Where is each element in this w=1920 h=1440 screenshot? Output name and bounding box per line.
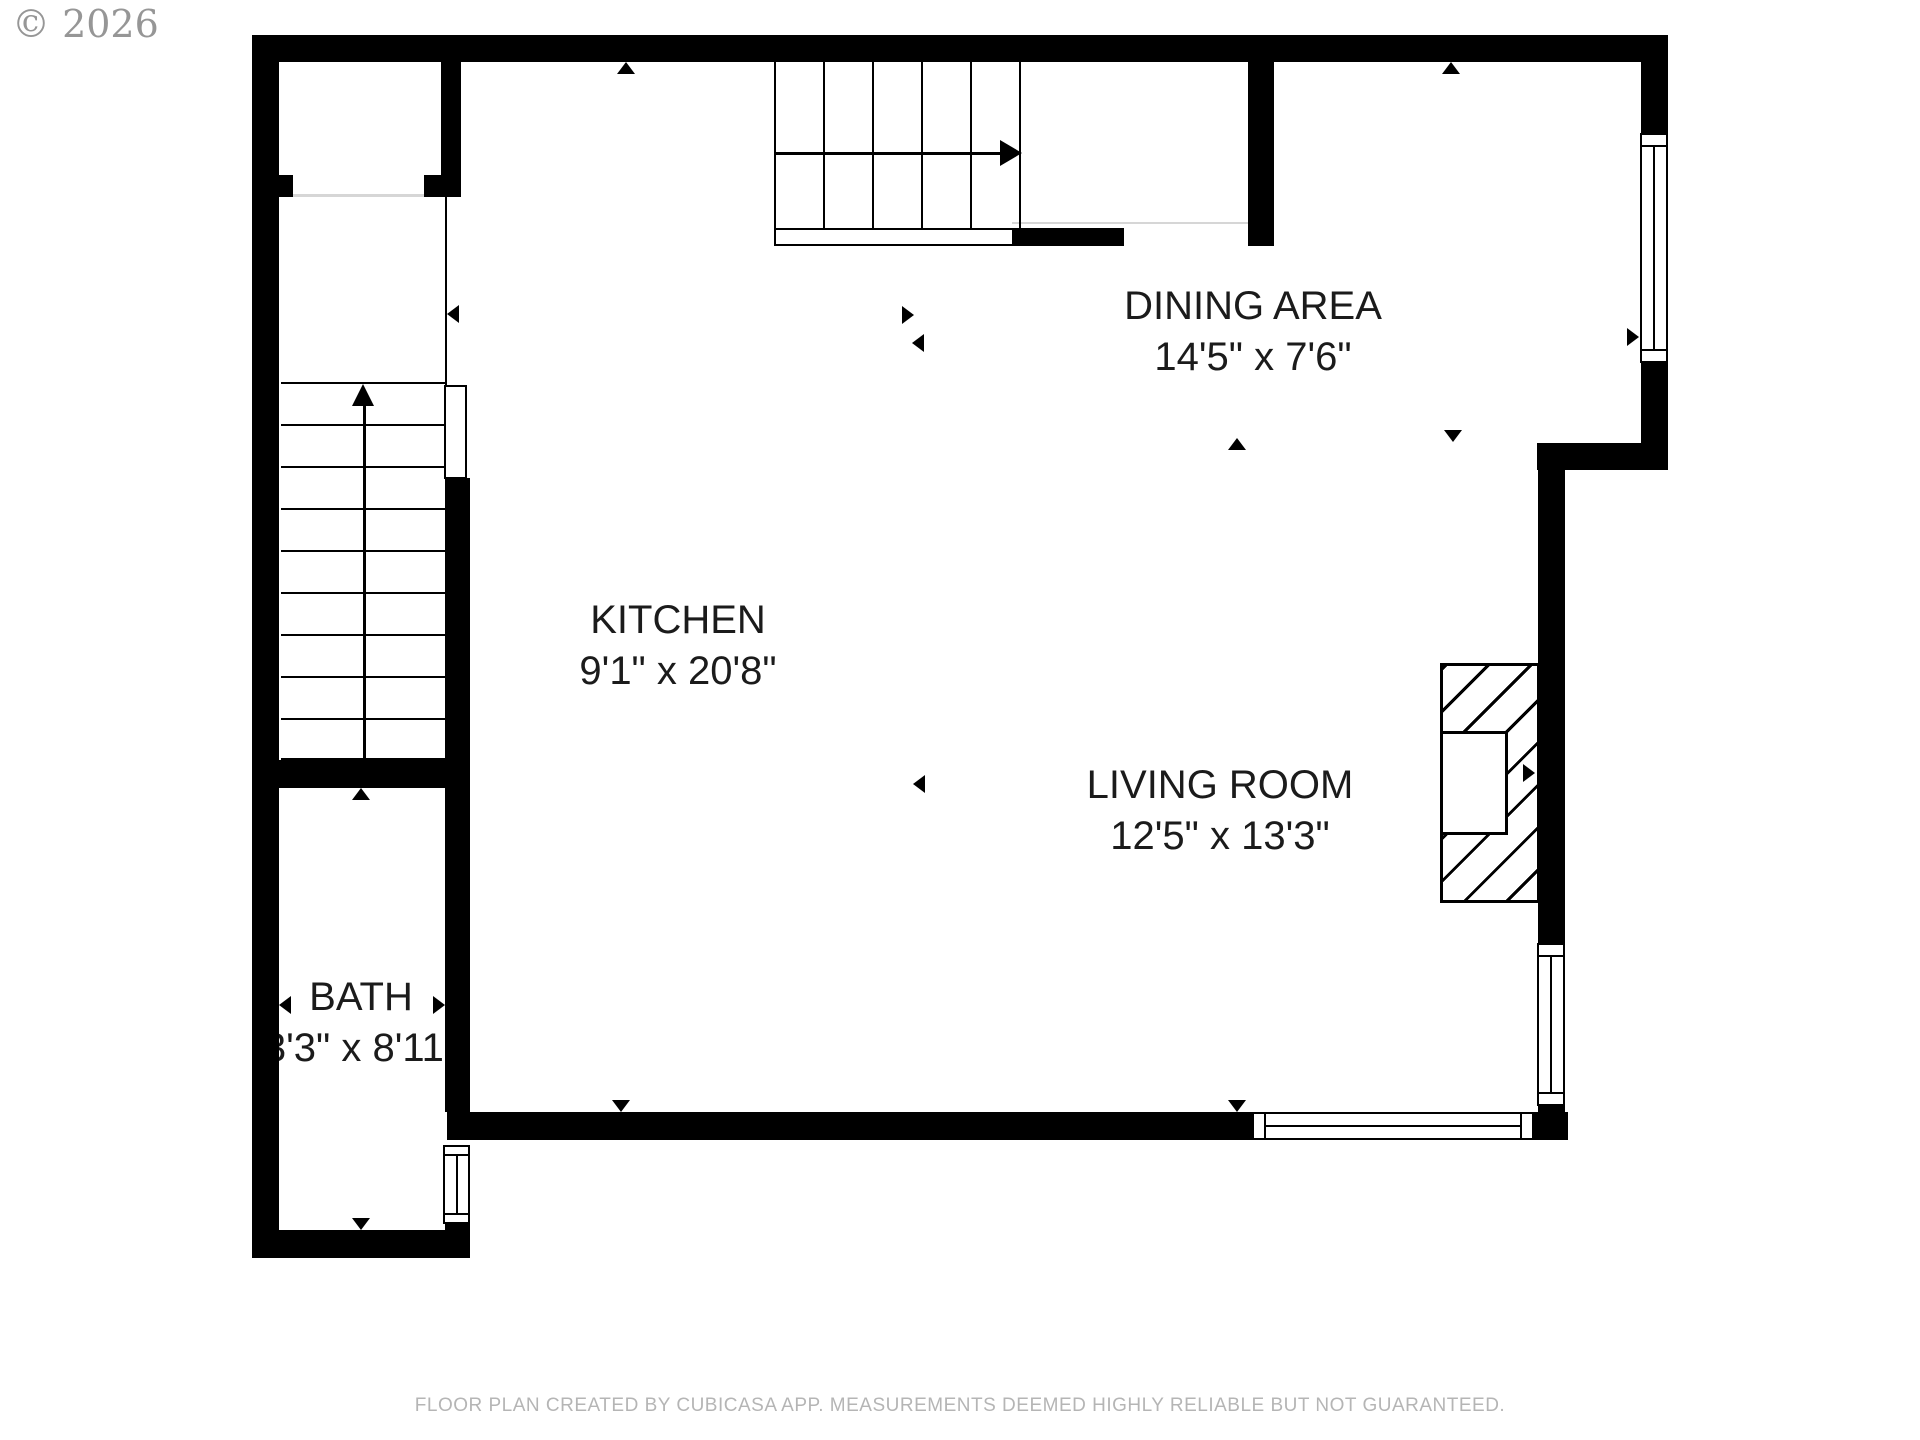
marker-down-icon [1444, 430, 1462, 442]
marker-right-icon [433, 996, 445, 1014]
wall-bath-bottom [252, 1230, 470, 1258]
marker-right-icon [1627, 328, 1639, 346]
wall-under-stairs [279, 760, 469, 788]
closet-door-opening-line [293, 194, 424, 197]
wall-right-upper-a [1641, 35, 1668, 135]
marker-down-icon [612, 1100, 630, 1112]
wall-closet-jamb-right [424, 175, 461, 197]
window-living-right [1537, 943, 1565, 1106]
wall-bottom-right-corner [1534, 1112, 1568, 1140]
stairwell-opening-line [1012, 222, 1248, 224]
marker-right-icon [902, 306, 914, 324]
room-dimensions: 14'5" x 7'6" [1124, 332, 1382, 383]
wall-closet-right [441, 62, 461, 177]
stair-tread [872, 62, 874, 228]
window-bath [443, 1145, 470, 1224]
stair-tread [774, 62, 776, 228]
wall-left [252, 35, 279, 1258]
marker-left-icon [913, 775, 925, 793]
room-dimensions: 9'1" x 20'8" [579, 646, 776, 697]
window-bottom [1252, 1112, 1534, 1140]
room-name: BATH [264, 972, 458, 1023]
marker-left-icon [912, 334, 924, 352]
entry-boundary-line [445, 197, 447, 385]
room-name: LIVING ROOM [1087, 760, 1354, 811]
stair-door-opening [444, 385, 467, 479]
stairs-up-arrow-line [363, 405, 366, 760]
footer-disclaimer: FLOOR PLAN CREATED BY CUBICASA APP. MEAS… [0, 1395, 1920, 1417]
copyright-watermark: © 2026 [12, 2, 159, 46]
wall-stairwell-right [1248, 62, 1274, 246]
room-label-dining: DINING AREA 14'5" x 7'6" [1124, 281, 1382, 383]
wall-stairwell-stub [1012, 228, 1124, 246]
room-label-bath: BATH 3'3" x 8'11" [264, 972, 458, 1074]
marker-left-icon [279, 996, 291, 1014]
wall-top [252, 35, 1668, 62]
wall-bottom [447, 1112, 1252, 1140]
window-dining-right [1640, 133, 1668, 363]
stairs-direction-arrow-icon [352, 384, 374, 406]
stair-tread [823, 62, 825, 228]
marker-up-icon [1228, 438, 1246, 450]
marker-up-icon [617, 62, 635, 74]
marker-up-icon [352, 788, 370, 800]
wall-stair-bath-right [445, 478, 470, 1112]
room-dimensions: 12'5" x 13'3" [1087, 811, 1354, 862]
room-dimensions: 3'3" x 8'11" [264, 1023, 458, 1074]
stairs-direction-arrow-icon [1000, 140, 1022, 166]
stair-tread [970, 62, 972, 228]
stair-tread [921, 62, 923, 228]
marker-right-icon [1523, 764, 1535, 782]
floor-plan: © 2026 FLOOR PLAN CREATED BY CUBICASA AP… [0, 0, 1920, 1440]
stair-landing-edge [774, 228, 1014, 246]
fireplace-firebox [1440, 731, 1508, 835]
marker-up-icon [1442, 62, 1460, 74]
room-label-kitchen: KITCHEN 9'1" x 20'8" [579, 595, 776, 697]
stairs-up-arrow-line [774, 152, 1002, 155]
room-name: DINING AREA [1124, 281, 1382, 332]
wall-closet-jamb-left [275, 175, 293, 197]
room-name: KITCHEN [579, 595, 776, 646]
wall-right-upper-b [1641, 363, 1668, 446]
marker-down-icon [352, 1218, 370, 1230]
marker-left-icon [447, 305, 459, 323]
room-label-living: LIVING ROOM 12'5" x 13'3" [1087, 760, 1354, 862]
marker-down-icon [1228, 1100, 1246, 1112]
wall-right-lower-a [1538, 443, 1565, 943]
